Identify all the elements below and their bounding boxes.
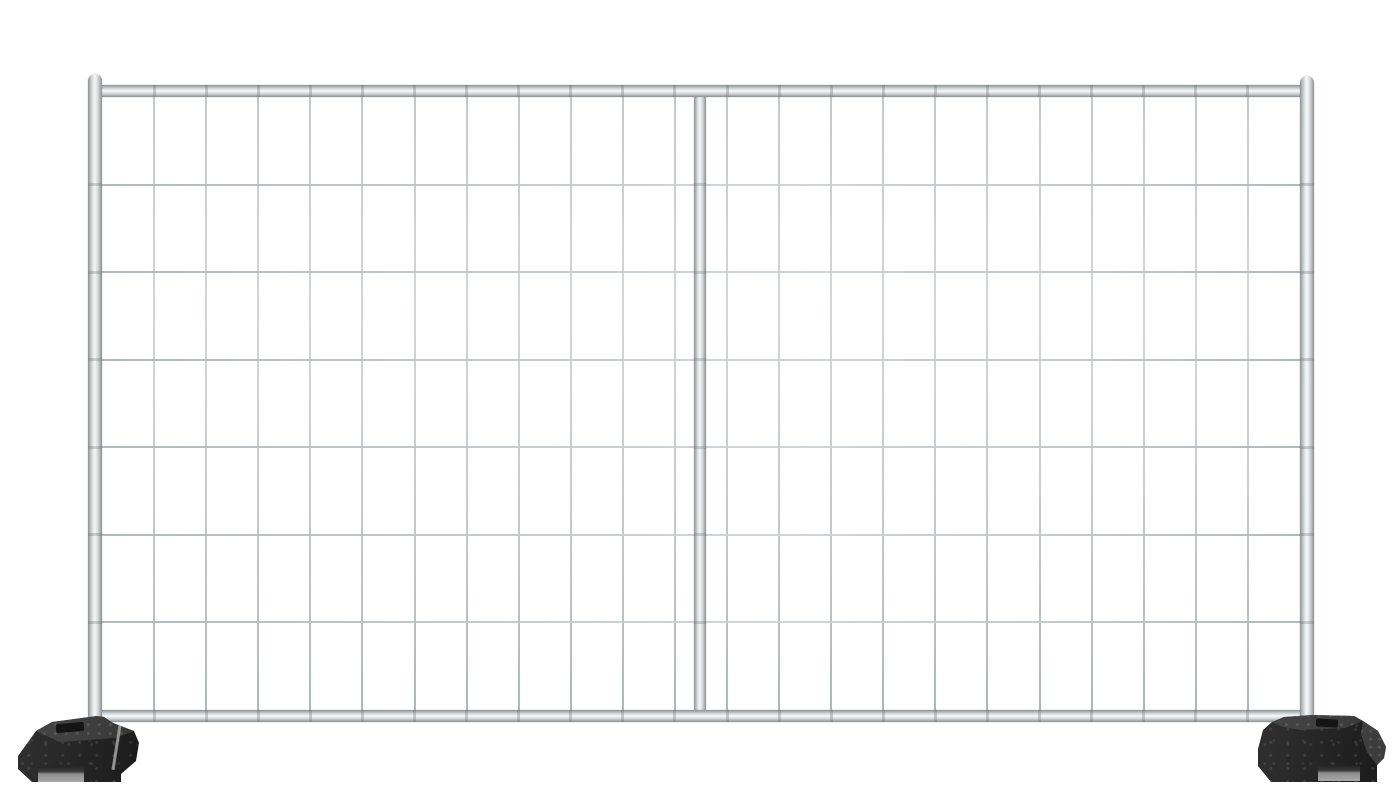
weld-joint-mark	[1300, 533, 1314, 536]
weld-joint-mark	[986, 85, 989, 97]
center-upright-tube	[694, 95, 706, 717]
weld-joint-mark	[694, 271, 706, 274]
weld-joint-mark	[1038, 710, 1041, 722]
weld-joint-mark	[413, 85, 416, 97]
weld-joint-mark	[778, 85, 781, 97]
weld-joint-mark	[1246, 85, 1249, 97]
weld-joint-mark	[88, 358, 102, 361]
right-upright-tube	[1300, 76, 1314, 750]
weld-joint-mark	[830, 710, 833, 722]
weld-joint-mark	[882, 710, 885, 722]
weld-joint-mark	[1300, 358, 1314, 361]
weld-joint-mark	[88, 621, 102, 624]
weld-joint-mark	[673, 710, 676, 722]
weld-joint-mark	[934, 710, 937, 722]
weld-joint-mark	[153, 85, 156, 97]
bottom-rail	[96, 710, 1308, 722]
weld-joint-mark	[726, 85, 729, 97]
weld-joint-mark	[673, 85, 676, 97]
weld-joint-mark	[694, 358, 706, 361]
weld-joint-mark	[1246, 710, 1249, 722]
weld-joint-mark	[153, 710, 156, 722]
product-photo	[0, 0, 1397, 804]
weld-joint-mark	[257, 85, 260, 97]
weld-joint-mark	[882, 85, 885, 97]
weld-joint-mark	[694, 533, 706, 536]
weld-joint-mark	[257, 710, 260, 722]
weld-joint-mark	[1038, 85, 1041, 97]
weld-joint-mark	[694, 183, 706, 186]
right-base-block	[1250, 712, 1394, 788]
weld-joint-mark	[986, 710, 989, 722]
weld-joint-mark	[1194, 710, 1197, 722]
weld-joint-mark	[1300, 271, 1314, 274]
top-rail	[96, 85, 1308, 97]
weld-joint-mark	[88, 533, 102, 536]
weld-joint-mark	[1300, 183, 1314, 186]
weld-joint-mark	[517, 85, 520, 97]
weld-joint-mark	[205, 85, 208, 97]
weld-joint-mark	[621, 710, 624, 722]
weld-joint-mark	[830, 85, 833, 97]
weld-joint-mark	[88, 271, 102, 274]
weld-joint-mark	[934, 85, 937, 97]
weld-joint-mark	[465, 85, 468, 97]
weld-joint-mark	[778, 710, 781, 722]
weld-joint-mark	[1142, 85, 1145, 97]
weld-joint-mark	[726, 710, 729, 722]
weld-joint-mark	[517, 710, 520, 722]
weld-joint-mark	[205, 710, 208, 722]
weld-joint-mark	[621, 85, 624, 97]
weld-joint-mark	[569, 85, 572, 97]
weld-joint-mark	[465, 710, 468, 722]
base-block-handle-recess	[1316, 718, 1338, 727]
weld-joint-mark	[1142, 710, 1145, 722]
weld-joint-mark	[413, 710, 416, 722]
weld-joint-mark	[1194, 85, 1197, 97]
weld-joint-mark	[1300, 446, 1314, 449]
weld-joint-mark	[1090, 710, 1093, 722]
weld-joint-mark	[361, 710, 364, 722]
weld-joint-mark	[88, 183, 102, 186]
left-base-block	[8, 712, 152, 788]
base-block-foot-slot	[1318, 766, 1360, 781]
weld-joint-mark	[694, 621, 706, 624]
weld-joint-mark	[88, 446, 102, 449]
weld-joint-mark	[569, 710, 572, 722]
weld-joint-mark	[1300, 621, 1314, 624]
weld-joint-mark	[309, 85, 312, 97]
weld-joint-mark	[1090, 85, 1093, 97]
weld-joint-mark	[309, 710, 312, 722]
weld-joint-mark	[694, 446, 706, 449]
base-block-foot-slot	[38, 767, 84, 782]
weld-joint-mark	[361, 85, 364, 97]
left-upright-tube	[88, 74, 102, 750]
